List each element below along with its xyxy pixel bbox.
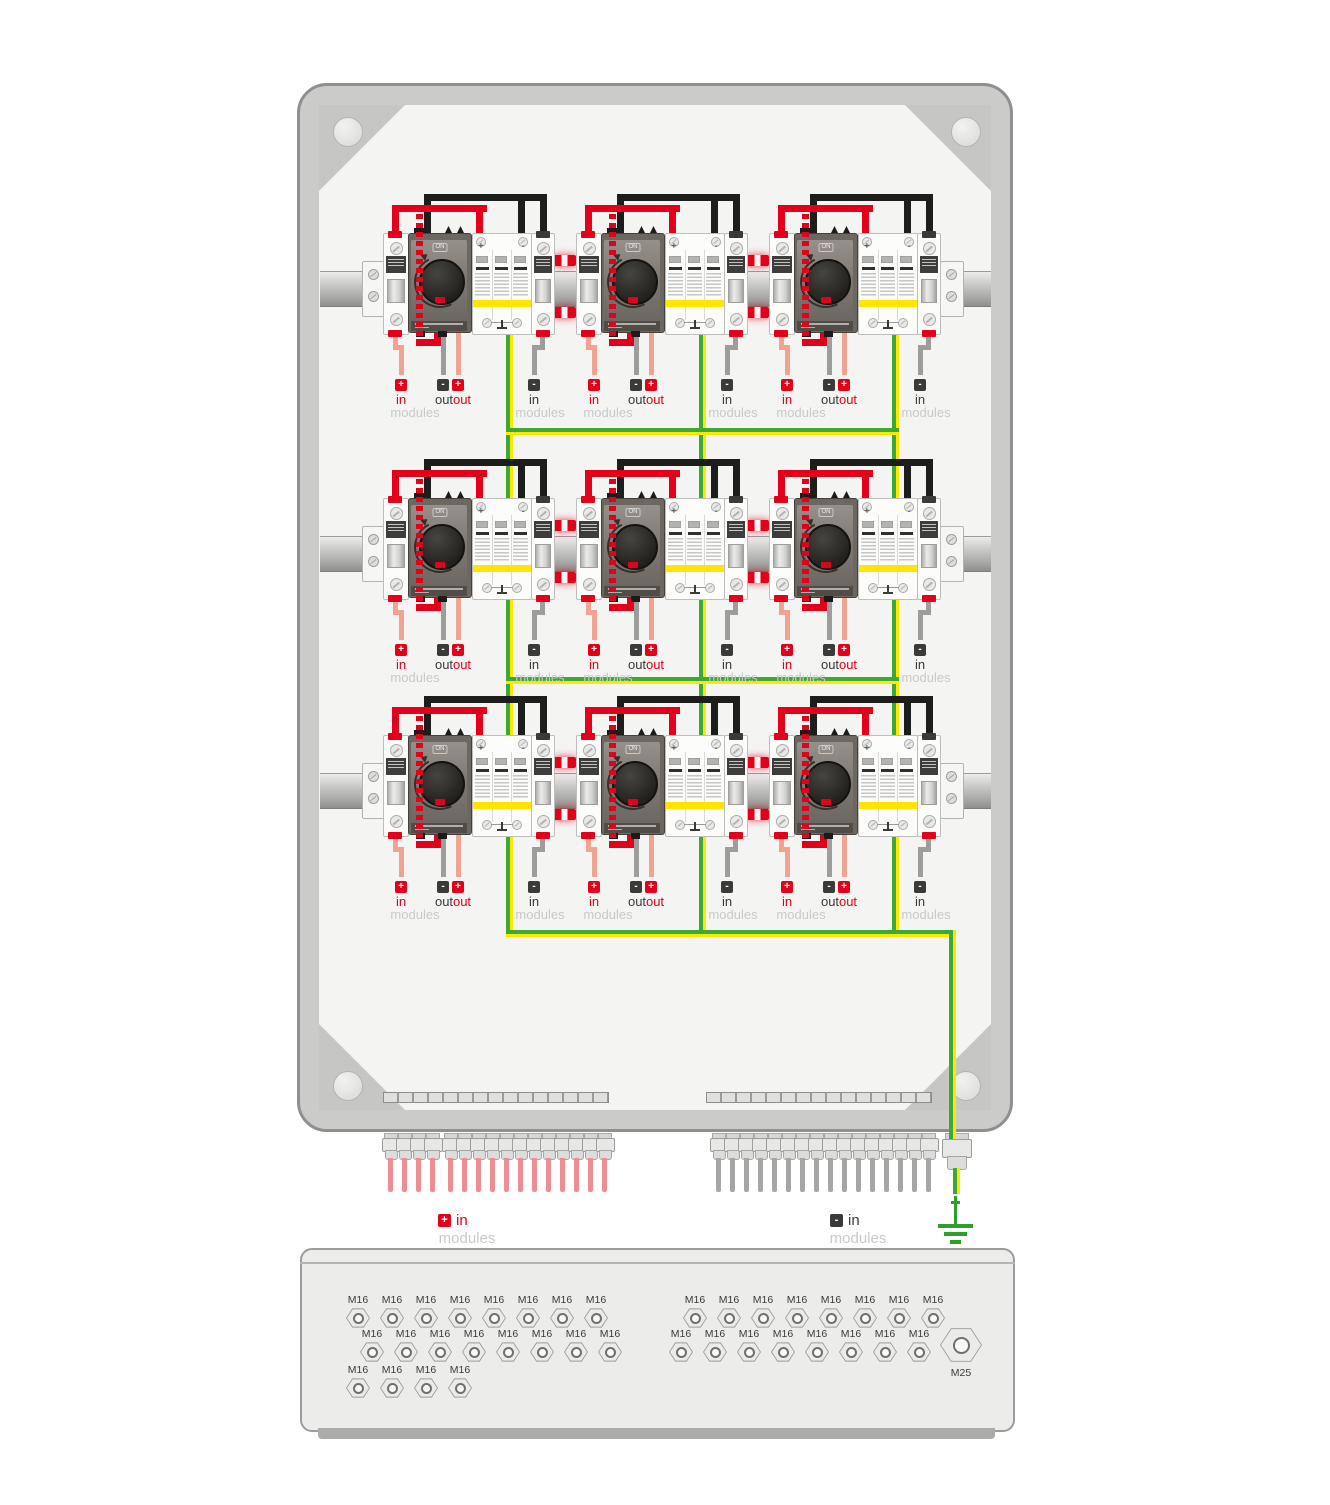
wire-negative: [424, 194, 431, 234]
knob-pointer: [821, 562, 831, 568]
screw-icon: [675, 820, 685, 830]
modules-label: modules: [776, 670, 825, 685]
surge-protection-device: + -: [665, 233, 725, 335]
ground-terminal-icon: [501, 320, 503, 327]
fuse-label-plate: [920, 521, 938, 538]
spd-status-window: [707, 256, 719, 263]
fuse-terminal: [922, 733, 936, 740]
switch-on-label: ON: [433, 243, 448, 252]
fuse-terminal: [536, 496, 550, 503]
wire-positive-bus: [585, 205, 680, 212]
spd-yellow-stripe: [666, 802, 724, 809]
plus-icon: +: [838, 379, 850, 391]
wire-string-plus-in: [592, 847, 597, 877]
screw-icon: [537, 242, 550, 255]
string-plus-input-wire: [430, 1158, 435, 1192]
screw-icon: [923, 578, 936, 591]
knob-pointer: [628, 562, 638, 568]
screw-icon: [868, 583, 878, 593]
m16-label: M16: [348, 1294, 368, 1306]
wire-out-minus: [827, 333, 832, 375]
string-plus-input-wire: [602, 1158, 607, 1192]
m16-label: M16: [518, 1294, 538, 1306]
spd-status-window: [900, 256, 912, 263]
wire-positive-bus: [778, 470, 873, 477]
minus-icon: -: [721, 644, 733, 656]
fuse-holder-minus: [531, 233, 555, 335]
screw-icon: [776, 815, 789, 828]
screw-icon: [923, 507, 936, 520]
screw-icon: [333, 117, 363, 147]
knob-pointer: [435, 562, 445, 568]
mount-claw: [438, 833, 447, 839]
gland-plate-panel: [300, 1248, 1015, 1432]
modules-label: modules: [583, 670, 632, 685]
mount-claw: [438, 596, 447, 602]
fuse-terminal: [388, 231, 402, 238]
minus-icon: -: [823, 881, 835, 893]
fuse-terminal: [922, 496, 936, 503]
string-protection-unit: ON + -: [383, 458, 576, 683]
out-plus-label: out: [453, 392, 471, 407]
screw-icon: [583, 507, 596, 520]
fuse-terminal: [729, 595, 743, 602]
spd-status-window: [688, 521, 700, 528]
wire-negative: [711, 696, 718, 736]
fuse-holder-plus: [769, 498, 795, 600]
spd-status-window: [669, 758, 681, 765]
m16-label: M16: [362, 1328, 382, 1340]
screw-icon: [390, 815, 403, 828]
wire-out-minus: [634, 598, 639, 640]
mount-claw: [824, 596, 833, 602]
fuse-window: [580, 544, 598, 568]
fuse-label-plate: [386, 758, 406, 775]
screw-icon: [868, 318, 878, 328]
wire-positive-bus: [392, 470, 487, 477]
wire-out-minus: [441, 835, 446, 877]
spd-plus-mark: +: [864, 506, 870, 517]
screw-icon: [923, 242, 936, 255]
surge-protection-device: + -: [472, 233, 532, 335]
modules-label: modules: [708, 907, 757, 922]
plus-icon: +: [838, 881, 850, 893]
string-minus-input-wire: [898, 1158, 903, 1192]
wire-positive: [862, 707, 869, 737]
m16-label: M16: [348, 1364, 368, 1376]
fuse-window: [728, 781, 744, 805]
fuse-holder-minus: [531, 735, 555, 837]
string-minus-input-wire: [786, 1158, 791, 1192]
wire-positive: [669, 707, 676, 737]
spd-minus-mark: -: [908, 506, 911, 517]
plus-icon: +: [645, 644, 657, 656]
modules-label: modules: [901, 405, 950, 420]
string-protection-unit: ON + -: [576, 458, 769, 683]
minus-icon: -: [914, 881, 926, 893]
spd-minus-mark: -: [715, 743, 718, 754]
wire-out-plus: [842, 333, 847, 375]
fuse-label-plate: [920, 758, 938, 775]
wire-out-minus: [634, 835, 639, 877]
out-plus-label: out: [453, 657, 471, 672]
spd-status-window: [881, 256, 893, 263]
plus-icon: +: [781, 881, 793, 893]
fuse-terminal: [536, 330, 550, 337]
wire-out-plus: [842, 598, 847, 640]
minus-icon: -: [528, 644, 540, 656]
m16-label: M16: [552, 1294, 572, 1306]
wire-negative: [424, 459, 431, 499]
screw-icon: [368, 793, 379, 804]
wire-out-plus: [649, 598, 654, 640]
spd-plus-mark: +: [864, 743, 870, 754]
wire-string-minus-in: [725, 847, 730, 877]
surge-protection-device: + -: [858, 735, 918, 837]
fuse-terminal: [388, 496, 402, 503]
wire-string-minus-in: [532, 847, 537, 877]
wire-negative: [810, 459, 817, 499]
spd-status-window: [900, 758, 912, 765]
mount-claw: [438, 331, 447, 337]
wire-string-minus-in: [725, 610, 730, 640]
fuse-terminal: [729, 231, 743, 238]
plus-icon: +: [838, 644, 850, 656]
fuse-terminal: [388, 733, 402, 740]
string-protection-unit: ON + -: [769, 458, 962, 683]
fuse-window: [535, 279, 551, 303]
modules-label: modules: [390, 405, 439, 420]
wire-negative-bus: [617, 696, 740, 703]
minus-icon: -: [830, 1214, 843, 1227]
spd-status-window: [669, 256, 681, 263]
ground-terminal-icon: [694, 585, 696, 592]
surge-protection-device: + -: [665, 498, 725, 600]
spd-status-window: [881, 521, 893, 528]
wire-negative: [540, 194, 547, 234]
screw-icon: [368, 556, 379, 567]
knob-pointer: [821, 799, 831, 805]
wire-positive: [669, 470, 676, 500]
spd-minus-mark: -: [908, 241, 911, 252]
wire-out-minus: [441, 333, 446, 375]
fuse-holder-plus: [769, 735, 795, 837]
minus-icon: -: [528, 881, 540, 893]
fuse-window: [773, 279, 791, 303]
spd-status-window: [707, 521, 719, 528]
switch-on-label: ON: [433, 508, 448, 517]
spd-status-window: [862, 256, 874, 263]
wire-negative-bus: [617, 459, 740, 466]
spd-plus-mark: +: [478, 241, 484, 252]
minus-icon: -: [630, 644, 642, 656]
wire-string-plus-in: [399, 847, 404, 877]
wire-negative: [711, 194, 718, 234]
wire-negative: [904, 194, 911, 234]
string-minus-input-wire: [842, 1158, 847, 1192]
wire-string-plus-in: [399, 345, 404, 375]
string-minus-input-wire: [800, 1158, 805, 1192]
fuse-holder-plus: [576, 498, 602, 600]
switch-on-label: ON: [626, 745, 641, 754]
string-minus-input-wire: [870, 1158, 875, 1192]
screw-icon: [390, 578, 403, 591]
fuse-window: [580, 279, 598, 303]
minus-icon: -: [528, 379, 540, 391]
string-protection-unit: ON + -: [576, 695, 769, 920]
wire-negative: [926, 194, 933, 234]
fuse-terminal: [536, 832, 550, 839]
string-protection-unit: ON + -: [383, 193, 576, 418]
m16-label: M16: [484, 1294, 504, 1306]
earth-bus: [506, 930, 956, 937]
ground-terminal-icon: [501, 585, 503, 592]
string-plus-input-wire: [448, 1158, 453, 1192]
wire-positive-bus: [585, 470, 680, 477]
string-minus-input-wire: [772, 1158, 777, 1192]
m16-label: M16: [719, 1294, 739, 1306]
wire-positive: [669, 205, 676, 235]
fuse-terminal: [774, 496, 788, 503]
wire-negative-bus: [424, 194, 547, 201]
screw-icon: [390, 507, 403, 520]
plus-icon: +: [395, 881, 407, 893]
string-protection-unit: ON + -: [769, 193, 962, 418]
pv-combiner-box-diagram: ON + -: [0, 0, 1330, 1505]
screw-icon: [705, 820, 715, 830]
m16-label: M16: [416, 1364, 436, 1376]
fuse-label-plate: [579, 758, 599, 775]
fuse-label-plate: [772, 758, 792, 775]
fuse-holder-plus: [769, 233, 795, 335]
fuse-terminal: [774, 330, 788, 337]
screw-icon: [333, 1071, 363, 1101]
minus-in-modules-label: - in: [830, 1212, 860, 1229]
wire-out-plus: [649, 333, 654, 375]
fuse-terminal: [581, 231, 595, 238]
spd-minus-mark: -: [522, 743, 525, 754]
string-protection-unit: ON + -: [769, 695, 962, 920]
m16-label: M16: [705, 1328, 725, 1340]
fuse-terminal: [581, 496, 595, 503]
plus-icon: +: [645, 379, 657, 391]
modules-label: modules: [515, 670, 564, 685]
spd-status-window: [514, 256, 526, 263]
spd-yellow-stripe: [859, 565, 917, 572]
string-minus-input-wire: [912, 1158, 917, 1192]
fuse-label-plate: [772, 256, 792, 273]
minus-icon: -: [437, 881, 449, 893]
ground-terminal-icon: [694, 822, 696, 829]
fuse-window: [580, 781, 598, 805]
modules-label: modules: [776, 405, 825, 420]
wire-negative: [540, 696, 547, 736]
switch-on-label: ON: [819, 508, 834, 517]
wire-negative: [518, 696, 525, 736]
wire-negative-bus: [810, 696, 933, 703]
wire-negative: [926, 696, 933, 736]
m16-label: M16: [739, 1328, 759, 1340]
plus-icon: +: [781, 644, 793, 656]
m16-label: M16: [671, 1328, 691, 1340]
wire-positive-bus: [778, 707, 873, 714]
spd-status-window: [862, 758, 874, 765]
screw-icon: [923, 313, 936, 326]
spd-yellow-stripe: [666, 300, 724, 307]
plus-icon: +: [395, 379, 407, 391]
fuse-window: [728, 544, 744, 568]
wire-out-plus: [842, 835, 847, 877]
screw-icon: [368, 534, 379, 545]
plus-icon: +: [588, 379, 600, 391]
minus-icon: -: [437, 644, 449, 656]
screw-icon: [482, 820, 492, 830]
m16-label: M16: [807, 1328, 827, 1340]
string-minus-input-wire: [884, 1158, 889, 1192]
m16-label: M16: [382, 1294, 402, 1306]
spd-minus-mark: -: [522, 241, 525, 252]
screw-icon: [951, 117, 981, 147]
spd-yellow-stripe: [473, 565, 531, 572]
screw-icon: [512, 820, 522, 830]
ground-terminal-icon: [887, 320, 889, 327]
screw-icon: [898, 318, 908, 328]
screw-icon: [482, 583, 492, 593]
string-plus-input-wire: [462, 1158, 467, 1192]
terminal-comb: [706, 1092, 932, 1103]
fuse-label-plate: [534, 521, 552, 538]
string-minus-input-wire: [856, 1158, 861, 1192]
string-protection-unit: ON + -: [383, 695, 576, 920]
wire-positive: [476, 470, 483, 500]
fuse-terminal: [774, 733, 788, 740]
fuse-terminal: [729, 832, 743, 839]
wire-out-plus: [649, 835, 654, 877]
wire-negative: [926, 459, 933, 499]
plus-modules-text: modules: [439, 1230, 496, 1247]
screw-icon: [730, 242, 743, 255]
string-plus-input-wire: [388, 1158, 393, 1192]
switch-on-label: ON: [819, 243, 834, 252]
m16-label: M16: [821, 1294, 841, 1306]
spd-status-window: [495, 521, 507, 528]
m16-label: M16: [566, 1328, 586, 1340]
modules-label: modules: [515, 405, 564, 420]
screw-icon: [390, 744, 403, 757]
wire-negative: [617, 194, 624, 234]
switch-on-label: ON: [626, 508, 641, 517]
spd-plus-mark: +: [864, 241, 870, 252]
m16-label: M16: [430, 1328, 450, 1340]
fuse-holder-minus: [917, 498, 941, 600]
spd-minus-mark: -: [715, 506, 718, 517]
fuse-terminal: [729, 330, 743, 337]
fuse-terminal: [388, 832, 402, 839]
screw-icon: [390, 313, 403, 326]
fuse-terminal: [536, 733, 550, 740]
fuse-terminal: [581, 330, 595, 337]
plus-icon: +: [452, 881, 464, 893]
wire-positive: [862, 205, 869, 235]
spd-minus-mark: -: [522, 506, 525, 517]
wire-positive-dashed: [609, 205, 616, 343]
fuse-terminal: [581, 733, 595, 740]
m16-label: M16: [923, 1294, 943, 1306]
plus-icon: +: [452, 379, 464, 391]
string-plus-input-wire: [476, 1158, 481, 1192]
fuse-holder-minus: [917, 233, 941, 335]
screw-icon: [730, 815, 743, 828]
screw-icon: [482, 318, 492, 328]
wire-positive-bus: [585, 707, 680, 714]
wire-negative: [518, 194, 525, 234]
wire-string-plus-in: [785, 847, 790, 877]
minus-icon: -: [823, 379, 835, 391]
spd-status-window: [476, 521, 488, 528]
plus-icon: +: [438, 1214, 451, 1227]
minus-icon: -: [914, 379, 926, 391]
spd-yellow-stripe: [859, 802, 917, 809]
m16-label: M16: [586, 1294, 606, 1306]
fuse-label-plate: [386, 521, 406, 538]
plus-icon: +: [452, 644, 464, 656]
screw-icon: [730, 578, 743, 591]
wire-positive-dashed: [802, 470, 809, 608]
modules-label: modules: [583, 405, 632, 420]
fuse-terminal: [729, 733, 743, 740]
screw-icon: [583, 313, 596, 326]
m16-label: M16: [450, 1294, 470, 1306]
wire-string-minus-in: [725, 345, 730, 375]
wire-out-plus: [456, 598, 461, 640]
wire-negative-bus: [424, 459, 547, 466]
fuse-label-plate: [920, 256, 938, 273]
screw-icon: [537, 815, 550, 828]
out-plus-label: out: [839, 894, 857, 909]
m16-label: M16: [753, 1294, 773, 1306]
fuse-window: [728, 279, 744, 303]
gland-plate-base: [318, 1428, 995, 1439]
string-minus-input-wire: [814, 1158, 819, 1192]
fuse-holder-plus: [576, 735, 602, 837]
modules-label: modules: [583, 907, 632, 922]
wire-negative: [540, 459, 547, 499]
surge-protection-device: + -: [665, 735, 725, 837]
spd-status-window: [688, 758, 700, 765]
fuse-terminal: [922, 231, 936, 238]
fuse-holder-minus: [724, 233, 748, 335]
out-plus-label: out: [453, 894, 471, 909]
wire-negative: [733, 194, 740, 234]
plus-in-text: in: [456, 1212, 468, 1229]
wire-negative: [711, 459, 718, 499]
switch-on-label: ON: [433, 745, 448, 754]
wire-out-minus: [634, 333, 639, 375]
fuse-window: [921, 544, 937, 568]
out-plus-label: out: [646, 392, 664, 407]
string-minus-input-wire: [716, 1158, 721, 1192]
screw-icon: [776, 744, 789, 757]
m16-label: M16: [498, 1328, 518, 1340]
string-protection-unit: ON + -: [576, 193, 769, 418]
screw-icon: [583, 242, 596, 255]
fuse-holder-plus: [576, 233, 602, 335]
screw-icon: [776, 313, 789, 326]
fuse-label-plate: [534, 758, 552, 775]
screw-icon: [898, 583, 908, 593]
fuse-label-plate: [727, 758, 745, 775]
knob-pointer: [435, 297, 445, 303]
